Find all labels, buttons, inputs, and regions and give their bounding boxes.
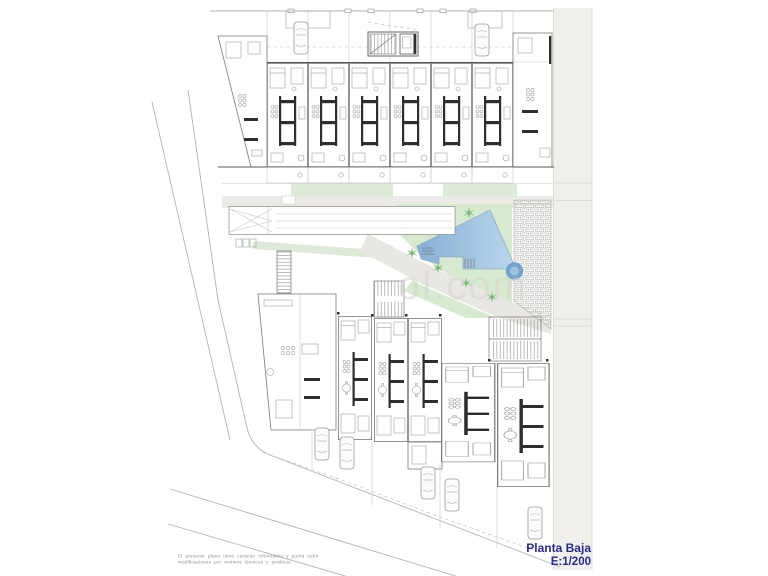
plan-title: Planta Baja: [526, 541, 591, 555]
apartment-unit: [267, 63, 307, 166]
apartment-unit: [442, 363, 495, 462]
parked-car: [475, 24, 489, 56]
parked-car: [445, 479, 459, 511]
apartment-unit: [374, 318, 407, 441]
parked-car: [315, 428, 329, 460]
stair-flight: [277, 251, 291, 293]
apartment-unit: [308, 63, 348, 166]
apartment-unit: [431, 63, 471, 166]
planting-strip: [291, 184, 393, 197]
vehicle-ramp: [229, 207, 455, 235]
plan-scale: E:1/200: [551, 556, 591, 568]
apartment-unit: [390, 63, 430, 166]
disclaimer-line-2: modificaciones por motivos técnicos y ju…: [178, 560, 292, 565]
parked-car: [294, 22, 308, 54]
planting-strip: [443, 184, 517, 197]
floor-plan-drawing: ol.com El presente plano tiene carácter …: [0, 0, 768, 576]
apartment-unit: [408, 318, 441, 441]
top-building-units: [267, 63, 512, 166]
apartment-unit: [498, 363, 549, 486]
floor-plan-sheet: ol.com El presente plano tiene carácter …: [0, 0, 768, 576]
apartment-unit-corner-right: [513, 33, 552, 167]
apartment-unit-extension: [408, 442, 442, 469]
parked-car: [421, 467, 435, 499]
road-right-strip: [554, 8, 593, 570]
apartment-unit: [338, 316, 371, 439]
parked-car: [340, 437, 354, 469]
watermark: ol.com: [398, 264, 528, 308]
apartment-unit-corner-bottom: [258, 294, 336, 430]
apartment-unit: [472, 63, 512, 166]
path-notch: [282, 196, 295, 204]
apartment-unit: [349, 63, 389, 166]
parked-car: [528, 507, 542, 539]
disclaimer-line-1: El presente plano tiene carácter informa…: [178, 554, 319, 559]
